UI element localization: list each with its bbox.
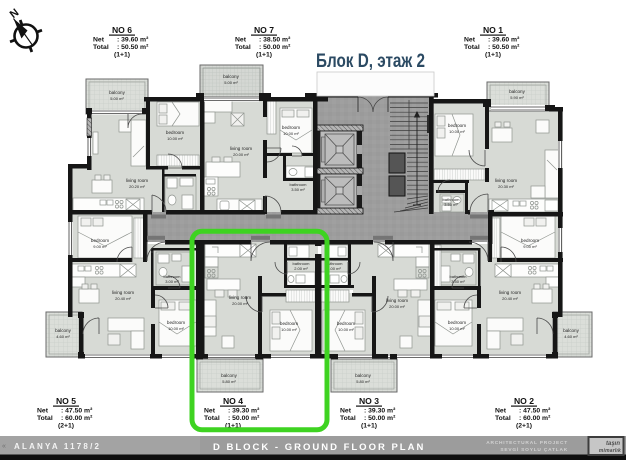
svg-text:balcony: balcony	[355, 373, 372, 378]
svg-text:Net: Net	[464, 37, 476, 44]
svg-text:20.40 m²: 20.40 m²	[115, 296, 131, 301]
svg-text:Блок D, этаж 2: Блок D, этаж 2	[316, 51, 425, 72]
svg-text:balcony: balcony	[563, 328, 580, 333]
svg-text:ALANYA 1178/2: ALANYA 1178/2	[14, 442, 101, 451]
svg-text:: 60.00 m²: : 60.00 m²	[519, 415, 551, 422]
svg-text:5.00 m²: 5.00 m²	[110, 96, 124, 101]
svg-text:: 50.50 m²: : 50.50 m²	[488, 44, 520, 51]
svg-text:(1+1): (1+1)	[485, 52, 501, 59]
svg-text:: 60.00 m²: : 60.00 m²	[61, 415, 93, 422]
svg-text:mimarlık: mimarlık	[599, 448, 621, 454]
svg-text:20.00 m²: 20.00 m²	[233, 152, 249, 157]
svg-text:bedroom: bedroom	[167, 320, 185, 325]
svg-text:5.80 m²: 5.80 m²	[356, 379, 370, 384]
svg-text:: 47.50 m²: : 47.50 m²	[519, 408, 551, 415]
svg-text:bedroom: bedroom	[280, 321, 298, 326]
svg-text:NO 7: NO 7	[254, 25, 274, 35]
svg-text:living room: living room	[230, 146, 252, 151]
svg-text:4.60 m²: 4.60 m²	[56, 334, 70, 339]
svg-text:10.00 m²: 10.00 m²	[281, 327, 297, 332]
svg-text:5.00 m²: 5.00 m²	[224, 80, 238, 85]
svg-text:NO 5: NO 5	[56, 396, 76, 406]
svg-text:(1+1): (1+1)	[256, 52, 272, 59]
svg-text:9.00 m²: 9.00 m²	[523, 244, 537, 249]
svg-text:Net: Net	[340, 408, 352, 415]
svg-text:ARCHITECTURAL PROJECT: ARCHITECTURAL PROJECT	[486, 440, 568, 446]
svg-text:: 39.30 m²: : 39.30 m²	[228, 408, 260, 415]
svg-text:10.00 m²: 10.00 m²	[449, 326, 465, 331]
svg-text:balcony: balcony	[55, 328, 72, 333]
svg-text:5.80 m²: 5.80 m²	[222, 379, 236, 384]
svg-text:Net: Net	[93, 37, 105, 44]
svg-text:20.00 m²: 20.00 m²	[389, 304, 405, 309]
svg-text:living room: living room	[386, 298, 408, 303]
svg-text:(2+1): (2+1)	[58, 423, 74, 430]
svg-text:Net: Net	[37, 408, 49, 415]
svg-text:: 39.30 m²: : 39.30 m²	[364, 408, 396, 415]
svg-text:: 50.00 m²: : 50.00 m²	[364, 415, 396, 422]
svg-text:20.30 m²: 20.30 m²	[498, 184, 514, 189]
svg-text:3.50 m²: 3.50 m²	[451, 279, 465, 284]
svg-text:balcony: balcony	[109, 90, 126, 95]
svg-text:20.20 m²: 20.20 m²	[129, 184, 145, 189]
svg-text:4.60 m²: 4.60 m²	[564, 334, 578, 339]
svg-text:bedroom: bedroom	[337, 321, 355, 326]
svg-text:SEVGİ SOYLU ÇATLAK: SEVGİ SOYLU ÇATLAK	[500, 446, 568, 453]
svg-text:(1+1): (1+1)	[114, 52, 130, 59]
svg-text:(1+1): (1+1)	[361, 423, 377, 430]
svg-text:living room: living room	[112, 290, 134, 295]
svg-text:balcony: balcony	[221, 373, 238, 378]
svg-text:D BLOCK - GROUND FLOOR PLAN: D BLOCK - GROUND FLOOR PLAN	[213, 442, 425, 453]
svg-text:: 50.50 m²: : 50.50 m²	[117, 44, 149, 51]
svg-text:3.50 m²: 3.50 m²	[291, 187, 305, 192]
svg-text:5.90 m²: 5.90 m²	[510, 95, 524, 100]
svg-text:bedroom: bedroom	[282, 125, 300, 130]
svg-text:Total: Total	[37, 415, 53, 422]
svg-text:Net: Net	[235, 37, 247, 44]
svg-text:: 50.00 m²: : 50.00 m²	[259, 44, 291, 51]
svg-text:bedroom: bedroom	[521, 238, 539, 243]
svg-text:Total: Total	[93, 44, 109, 51]
svg-text:3.50 m²: 3.50 m²	[444, 202, 458, 207]
svg-text:3.00 m²: 3.00 m²	[165, 279, 179, 284]
svg-text:bedroom: bedroom	[91, 238, 109, 243]
svg-text:20.40 m²: 20.40 m²	[502, 296, 518, 301]
svg-text:10.00 m²: 10.00 m²	[168, 326, 184, 331]
svg-text:NO 6: NO 6	[112, 25, 132, 35]
svg-text:living room: living room	[126, 178, 148, 183]
svg-text:Total: Total	[204, 415, 220, 422]
svg-text:NO 4: NO 4	[223, 396, 243, 406]
svg-text:living room: living room	[499, 290, 521, 295]
svg-text:: 50.00 m²: : 50.00 m²	[228, 415, 260, 422]
svg-text:Total: Total	[235, 44, 251, 51]
svg-text:NO 1: NO 1	[483, 25, 503, 35]
svg-text:10.00 m²: 10.00 m²	[449, 129, 465, 134]
svg-text:bedroom: bedroom	[448, 320, 466, 325]
svg-text:9.00 m²: 9.00 m²	[93, 244, 107, 249]
svg-text:: 47.50 m²: : 47.50 m²	[61, 408, 93, 415]
svg-text:10.00 m²: 10.00 m²	[283, 131, 299, 136]
svg-text:Total: Total	[464, 44, 480, 51]
svg-text:«: «	[2, 443, 6, 450]
svg-text:Net: Net	[204, 408, 216, 415]
svg-text:(2+1): (2+1)	[516, 423, 532, 430]
svg-text:: 38.50 m²: : 38.50 m²	[259, 37, 291, 44]
svg-text:bedroom: bedroom	[448, 123, 466, 128]
svg-text:2.00 m²: 2.00 m²	[294, 266, 308, 271]
svg-text:Total: Total	[495, 415, 511, 422]
svg-text:bedroom: bedroom	[166, 130, 184, 135]
svg-text:: 39.60 m²: : 39.60 m²	[117, 37, 149, 44]
svg-text:: 39.60 m²: : 39.60 m²	[488, 37, 520, 44]
svg-text:10.00 m²: 10.00 m²	[167, 136, 183, 141]
svg-text:NO 3: NO 3	[359, 396, 379, 406]
svg-text:taşın: taşın	[606, 441, 620, 447]
svg-text:living room: living room	[495, 178, 517, 183]
svg-text:20.00 m²: 20.00 m²	[232, 301, 248, 306]
svg-text:10.00 m²: 10.00 m²	[338, 327, 354, 332]
svg-text:living room: living room	[229, 295, 251, 300]
svg-text:balcony: balcony	[509, 89, 526, 94]
svg-text:balcony: balcony	[223, 74, 240, 79]
svg-text:Net: Net	[495, 408, 507, 415]
svg-text:Total: Total	[340, 415, 356, 422]
svg-text:NO 2: NO 2	[514, 396, 534, 406]
